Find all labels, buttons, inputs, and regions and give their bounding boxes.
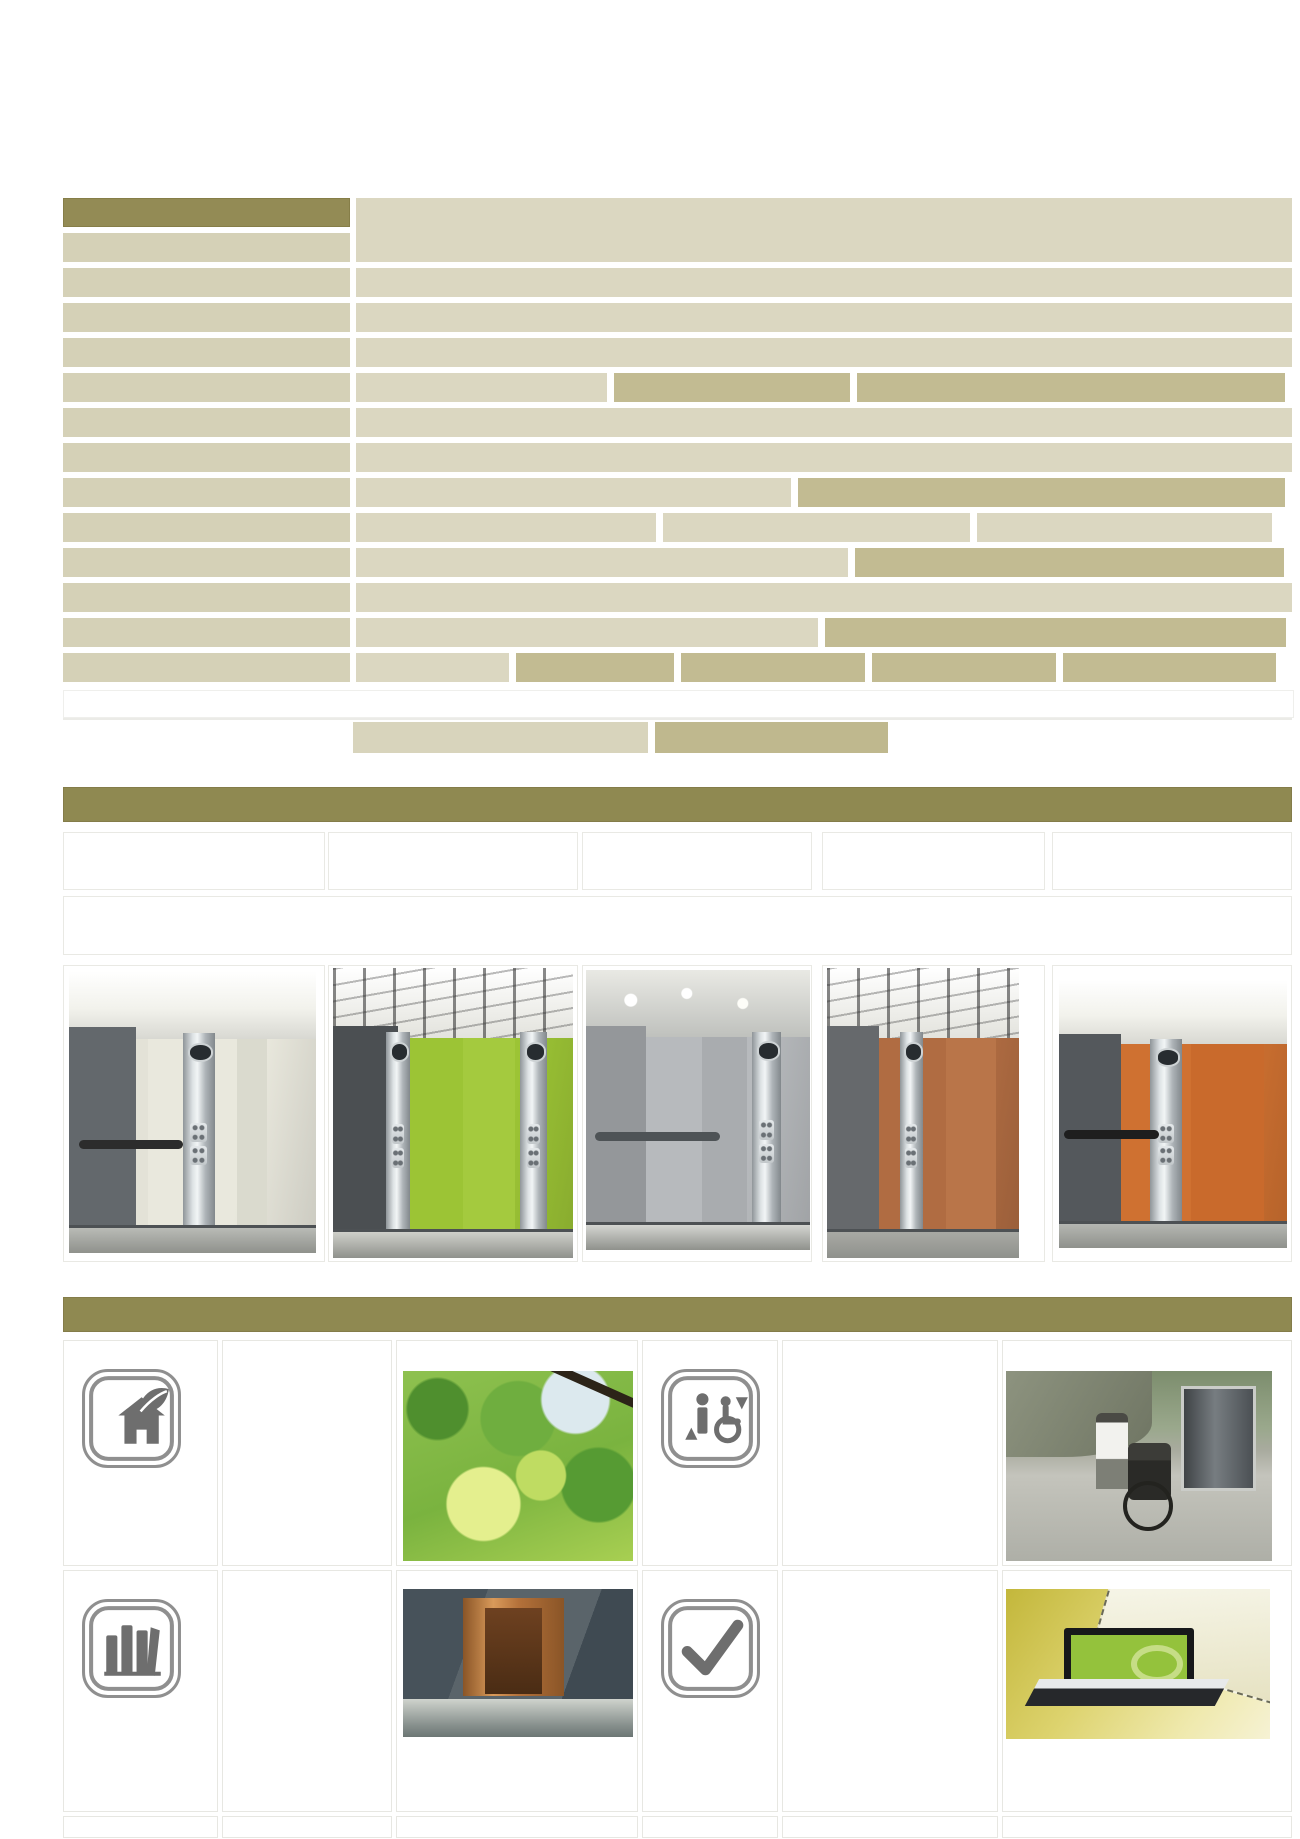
feature-cell (222, 1570, 392, 1812)
cab-button-pad (759, 1144, 774, 1163)
checkmark-icon (659, 1597, 762, 1700)
cab-button-pad (392, 1124, 404, 1144)
feature-cell (782, 1570, 998, 1812)
cab-floor (333, 1229, 573, 1258)
gallery-header-cell (822, 832, 1045, 890)
gallery-header-cell (63, 832, 325, 890)
laptop-panel-photo (1006, 1589, 1270, 1739)
copper-doorway (463, 1598, 564, 1696)
gallery-header-cell (1052, 832, 1292, 890)
cab-side-wall (827, 1026, 879, 1232)
cab-button-pad (527, 1124, 541, 1144)
gallery-image-cell (822, 965, 1045, 1262)
feature-cell (63, 1816, 218, 1838)
eco-house-icon (80, 1367, 183, 1470)
cab-display-oval (188, 1043, 213, 1063)
feature-cell (222, 1816, 392, 1838)
cab-steel-strip (386, 1032, 410, 1232)
cab-button-pad (905, 1148, 917, 1168)
cab-button-pad (905, 1124, 917, 1144)
outdoor-wheelchair-photo (1006, 1371, 1272, 1561)
cab-floor (586, 1222, 810, 1250)
gallery-header-cell (328, 832, 578, 890)
feature-cell (642, 1816, 778, 1838)
cab-side-wall (69, 1027, 136, 1227)
cab-accent-panel (946, 1032, 996, 1232)
leaves-photo (403, 1371, 633, 1561)
feature-cell (63, 1570, 218, 1812)
wheelchair-wheel (1123, 1481, 1173, 1531)
feature-cell (1002, 1570, 1292, 1812)
cab-steel-strip (520, 1032, 546, 1232)
feature-cell (396, 1340, 638, 1566)
gallery-header-cell (582, 832, 812, 890)
cab-accent-panel (1191, 1039, 1264, 1224)
cab-display-oval (904, 1042, 923, 1062)
cab-photo-green-cab (333, 968, 573, 1258)
cab-steel-strip (900, 1032, 923, 1232)
cab-photo-silver-cab (586, 970, 810, 1250)
cab-display-oval (390, 1042, 409, 1062)
elevator-accessibility-icon (659, 1367, 762, 1470)
cab-side-wall (586, 1026, 646, 1225)
cab-button-pad (1158, 1124, 1175, 1142)
gallery-image-cell (328, 965, 578, 1262)
gallery-blank-row (63, 896, 1292, 955)
cab-handrail (595, 1132, 720, 1141)
lobby-floor (403, 1699, 633, 1737)
cab-button-pad (190, 1146, 207, 1165)
cab-photo-wood-cab (827, 968, 1019, 1258)
stacked-books-icon (80, 1597, 183, 1700)
cab-floor (827, 1229, 1019, 1258)
cab-floor (69, 1225, 316, 1253)
cab-handrail (79, 1140, 183, 1149)
feature-cell (642, 1340, 778, 1566)
cab-button-pad (1158, 1146, 1175, 1164)
cab-floor (1059, 1221, 1287, 1248)
cab-button-pad (527, 1148, 541, 1168)
cab-button-pad (190, 1123, 207, 1142)
cab-steel-strip (752, 1032, 781, 1225)
cab-button-pad (759, 1120, 774, 1139)
gallery-image-cell (1052, 965, 1292, 1262)
brochure-page (0, 0, 1300, 1839)
feature-cell (222, 1340, 392, 1566)
features-grid-section (63, 1340, 1292, 1839)
cab-side-wall (1059, 1034, 1121, 1224)
cab-handrail (1064, 1130, 1160, 1139)
cab-display-oval (1156, 1048, 1180, 1067)
elevator-door (1181, 1386, 1256, 1491)
section-header-bar-features (63, 1297, 1292, 1332)
gallery-image-cell (582, 965, 812, 1262)
feature-cell (1002, 1816, 1292, 1838)
cab-steel-strip (183, 1033, 215, 1228)
cab-accent-panel (237, 1033, 267, 1228)
cab-photo-orange-cab (1059, 980, 1287, 1248)
gallery-image-cell (63, 965, 325, 1262)
feature-cell (782, 1340, 998, 1566)
cab-accent-panel (463, 1032, 516, 1232)
feature-cell (396, 1816, 638, 1838)
feature-cell (396, 1570, 638, 1812)
laptop-base (1025, 1679, 1229, 1706)
feature-cell (782, 1816, 998, 1838)
cab-button-pad (392, 1148, 404, 1168)
cab-accent-panel (702, 1032, 747, 1225)
cab-display-oval (757, 1041, 780, 1060)
cab-photo-ivory-cab (69, 971, 316, 1253)
cab-display-oval (525, 1042, 546, 1062)
feature-cell (63, 1340, 218, 1566)
feature-cell (642, 1570, 778, 1812)
feature-cell (1002, 1340, 1292, 1566)
caregiver-figure (1096, 1413, 1128, 1489)
copper-lobby-photo (403, 1589, 633, 1737)
